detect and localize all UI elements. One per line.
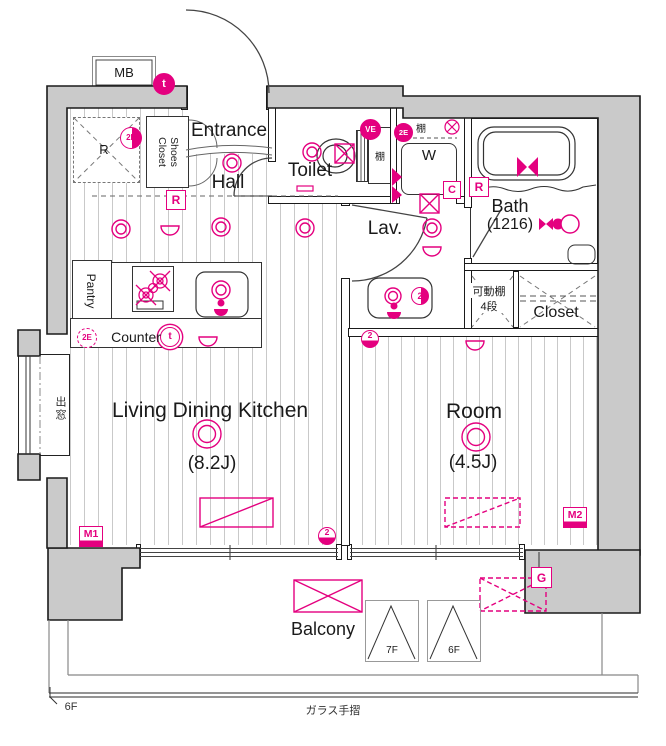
- ldk-label: Living Dining Kitchen: [100, 399, 320, 423]
- hall-label: Hall: [196, 172, 260, 194]
- bathtub-icon: [478, 127, 575, 180]
- room-label: Room: [442, 400, 506, 424]
- marker-2e-washer: 2E: [394, 123, 413, 142]
- bay-window-glass: [26, 356, 40, 454]
- floor-plan: t t 2E 2E 2E VE 2 2 2 R C R M1 M2 G Entr…: [0, 0, 666, 746]
- adjustable-shelf-label: 可動棚: [468, 283, 510, 298]
- marker-2-lav: 2: [411, 287, 429, 305]
- lav-label: Lav.: [356, 218, 414, 240]
- marker-2-kitchen: 2: [361, 330, 379, 348]
- marker-m1: M1: [79, 526, 103, 547]
- marker-r-bath: R: [469, 177, 489, 197]
- exhaust-fan-icon: [294, 144, 439, 612]
- marker-2e-entrance: 2E: [120, 127, 142, 149]
- hatch-box-6f: [427, 600, 481, 662]
- bath-water-line: [479, 185, 596, 192]
- aircon-icon: [200, 498, 273, 527]
- future-aircon-icon: [445, 498, 520, 527]
- entrance-door-arc: [186, 10, 269, 93]
- closet-label: Closet: [518, 303, 594, 323]
- bath-corner-seat: [568, 245, 595, 264]
- marker-2e-counter: 2E: [77, 328, 97, 348]
- wall-light-icon: [161, 226, 484, 350]
- marker-t-meterbox: t: [153, 73, 175, 95]
- bath-dryer-icon: [539, 215, 579, 233]
- counter-label: Counter: [106, 329, 166, 344]
- glass-rail-label: ガラス手摺: [290, 702, 376, 717]
- ceiling-light-icon: [193, 420, 490, 451]
- washer-label: W: [420, 146, 438, 164]
- vent-circle-icon: [445, 120, 459, 134]
- marker-g: G: [531, 567, 552, 588]
- pantry-label: Pantry: [81, 261, 101, 321]
- floor-level-tick: [50, 687, 57, 704]
- shoes-closet-line2: Closet: [155, 137, 167, 167]
- stove-burner-icon: [136, 271, 170, 305]
- bay-window-label: 出窓: [52, 386, 68, 432]
- toilet-shelf-label: 棚: [373, 148, 387, 162]
- marker-ve-toilet: VE: [360, 119, 381, 140]
- shoes-closet-label: Shoes Closet: [152, 117, 182, 187]
- refrigerator-label: R: [94, 140, 114, 158]
- ldk-size-label: (8.2J): [178, 452, 246, 476]
- basin-faucet-icon: [387, 303, 401, 320]
- entrance-label: Entrance: [186, 120, 272, 142]
- adjustable-shelf-steps-label: 4段: [472, 298, 506, 313]
- washer-shelf-label: 棚: [414, 120, 428, 134]
- hatch-box-7f: [365, 600, 419, 662]
- meter-box-label: MB: [92, 62, 156, 82]
- entrance-step-lines: [186, 145, 272, 157]
- sink-faucet-icon: [214, 300, 228, 317]
- glass-rail-line: [49, 693, 638, 697]
- bath-size-label: (1216): [478, 215, 542, 235]
- stove-grill: [137, 301, 163, 309]
- bath-vent-bowtie-icon: [517, 157, 538, 177]
- shoes-closet-line1: Shoes: [167, 137, 179, 167]
- closet-hanger-pipe: [520, 296, 596, 301]
- toilet-label: Toilet: [276, 160, 344, 182]
- sliding-windows: [140, 545, 523, 560]
- paper-holder-icon: [297, 186, 313, 191]
- marker-c-bath: C: [443, 181, 461, 199]
- floor-level-label: 6F: [60, 700, 82, 713]
- balcony-label: Balcony: [288, 618, 358, 640]
- marker-r-hall: R: [166, 190, 186, 210]
- room-size-label: (4.5J): [438, 451, 508, 475]
- bath-label: Bath: [482, 196, 538, 216]
- marker-2-window: 2: [318, 527, 336, 545]
- marker-m2: M2: [563, 507, 587, 528]
- damper-wedge-icon: [392, 168, 402, 203]
- lav-door-arc: [352, 205, 427, 281]
